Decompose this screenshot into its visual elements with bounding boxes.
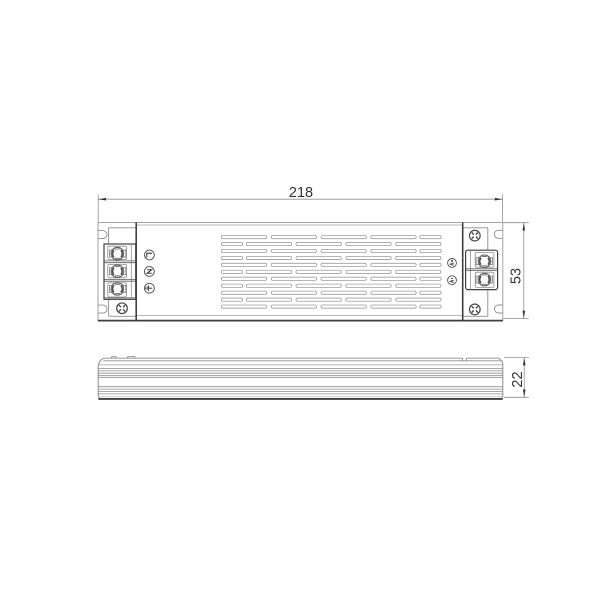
svg-text:22: 22 — [510, 371, 526, 387]
svg-text:218: 218 — [289, 185, 313, 201]
svg-text:53: 53 — [509, 268, 525, 284]
